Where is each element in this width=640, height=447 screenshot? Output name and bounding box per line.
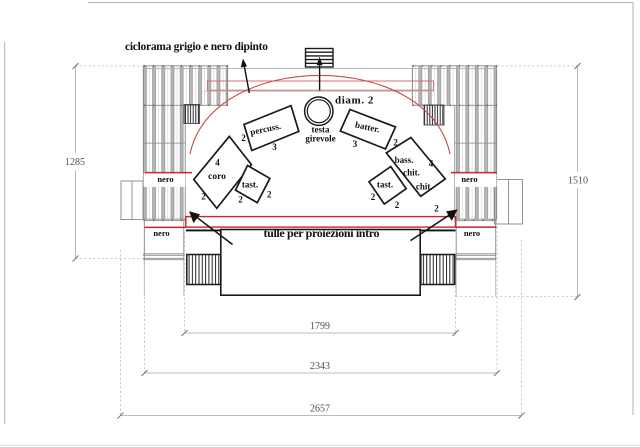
svg-text:nero: nero xyxy=(464,228,480,238)
svg-text:tulle per proiezioni intro: tulle per proiezioni intro xyxy=(264,226,380,240)
svg-text:2: 2 xyxy=(241,133,246,143)
svg-text:2: 2 xyxy=(371,192,376,202)
svg-text:2343: 2343 xyxy=(310,361,330,372)
svg-text:2: 2 xyxy=(238,194,243,204)
svg-text:ciclorama grigio e nero dipint: ciclorama grigio e nero dipinto xyxy=(125,41,268,53)
svg-text:2: 2 xyxy=(267,190,272,200)
svg-text:chit.: chit. xyxy=(416,182,433,192)
svg-text:1799: 1799 xyxy=(310,321,330,332)
svg-text:1285: 1285 xyxy=(65,157,85,168)
svg-text:2: 2 xyxy=(395,200,400,210)
svg-text:3: 3 xyxy=(272,142,277,152)
svg-text:bass.: bass. xyxy=(395,155,414,165)
svg-text:2: 2 xyxy=(201,192,206,202)
svg-text:tast.: tast. xyxy=(377,180,393,190)
svg-text:diam. 2: diam. 2 xyxy=(335,94,374,106)
svg-text:tast.: tast. xyxy=(242,180,258,190)
svg-text:4: 4 xyxy=(215,158,220,168)
svg-text:coro: coro xyxy=(208,172,226,182)
svg-text:2657: 2657 xyxy=(310,404,330,415)
svg-text:nero: nero xyxy=(153,228,169,238)
svg-text:nero: nero xyxy=(157,174,173,184)
svg-text:4: 4 xyxy=(429,159,434,169)
svg-text:3: 3 xyxy=(353,139,358,149)
svg-text:nero: nero xyxy=(461,174,477,184)
svg-text:2: 2 xyxy=(393,138,398,148)
svg-text:1510: 1510 xyxy=(568,176,588,187)
svg-text:girevole: girevole xyxy=(305,134,335,144)
svg-text:chit.: chit. xyxy=(403,168,420,178)
svg-text:2: 2 xyxy=(434,204,439,214)
